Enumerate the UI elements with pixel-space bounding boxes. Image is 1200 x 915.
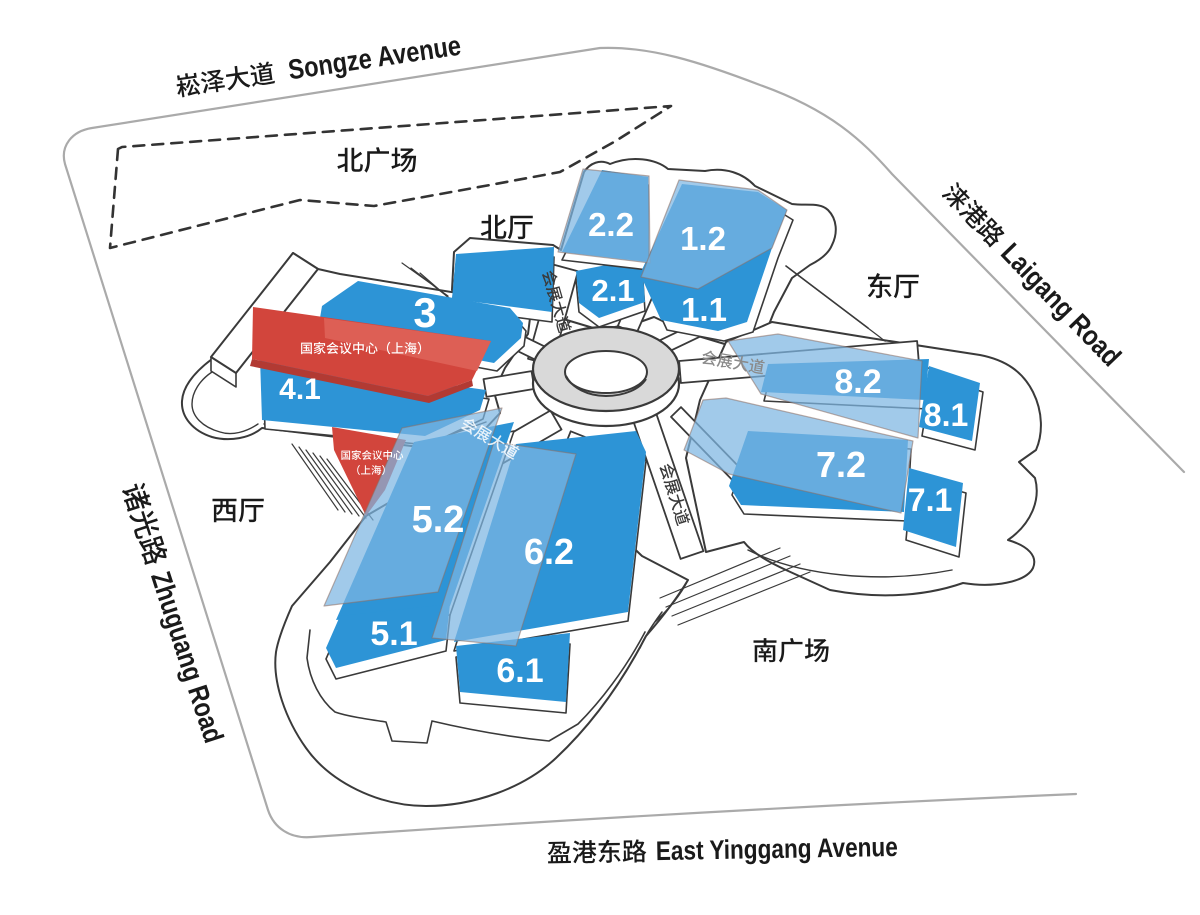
svg-text:2.1: 2.1 xyxy=(591,273,634,308)
svg-text:East Yinggang Avenue: East Yinggang Avenue xyxy=(656,832,898,866)
svg-text:Songze Avenue: Songze Avenue xyxy=(286,30,463,86)
svg-text:1.1: 1.1 xyxy=(681,291,727,328)
svg-text:Laigang Road: Laigang Road xyxy=(995,237,1127,372)
svg-text:3: 3 xyxy=(413,289,436,336)
svg-text:5.1: 5.1 xyxy=(370,615,417,653)
svg-text:6.1: 6.1 xyxy=(496,652,543,690)
svg-text:6.2: 6.2 xyxy=(524,531,574,572)
svg-text:2.2: 2.2 xyxy=(588,206,634,243)
svg-text:Zhuguang Road: Zhuguang Road xyxy=(145,568,229,747)
svg-text:4.1: 4.1 xyxy=(279,373,321,406)
svg-text:7.2: 7.2 xyxy=(816,444,866,485)
svg-text:7.1: 7.1 xyxy=(908,482,952,518)
svg-text:8.2: 8.2 xyxy=(834,363,881,401)
svg-text:5.2: 5.2 xyxy=(412,499,465,541)
svg-text:1.2: 1.2 xyxy=(680,220,726,257)
svg-text:8.1: 8.1 xyxy=(924,397,968,433)
